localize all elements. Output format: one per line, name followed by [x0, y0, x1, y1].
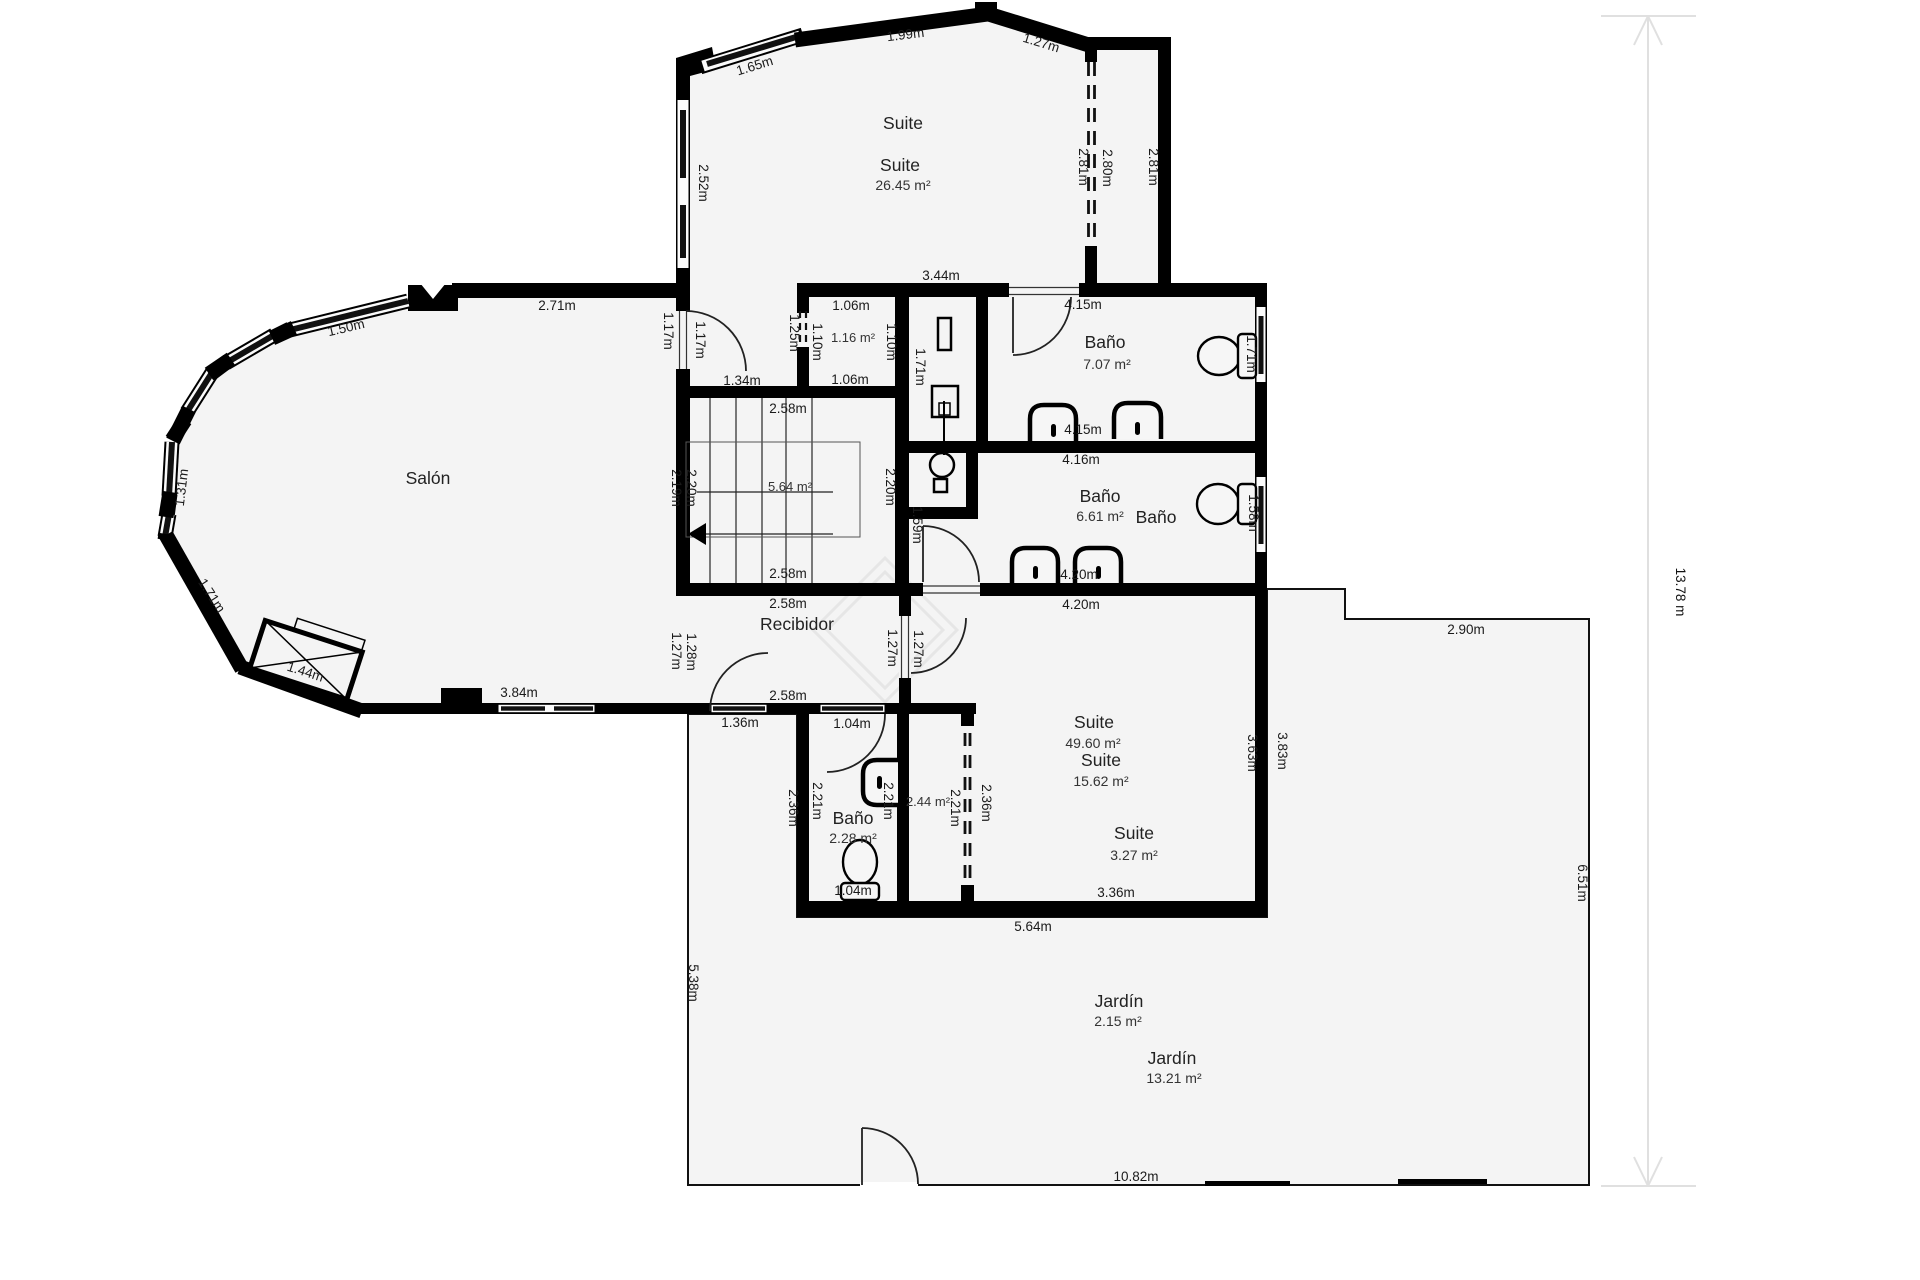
- svg-text:6.61 m²: 6.61 m²: [1076, 508, 1124, 524]
- svg-text:4.16m: 4.16m: [1062, 452, 1100, 467]
- svg-text:1.27m: 1.27m: [911, 630, 926, 668]
- svg-text:2.52m: 2.52m: [696, 164, 711, 202]
- svg-text:2.90m: 2.90m: [1447, 622, 1485, 637]
- svg-text:3.83m: 3.83m: [1275, 732, 1290, 770]
- svg-text:2.44 m²: 2.44 m²: [906, 794, 951, 809]
- svg-text:2.80m: 2.80m: [1100, 149, 1115, 187]
- svg-text:2.81m: 2.81m: [1146, 148, 1161, 186]
- svg-text:2.20m: 2.20m: [883, 468, 898, 506]
- svg-text:4.15m: 4.15m: [1064, 297, 1102, 312]
- svg-text:Suite: Suite: [883, 113, 923, 133]
- svg-text:1.04m: 1.04m: [834, 883, 872, 898]
- svg-text:13.78 m: 13.78 m: [1673, 568, 1688, 617]
- svg-text:2.21m: 2.21m: [881, 782, 896, 820]
- svg-text:Jardín: Jardín: [1095, 991, 1144, 1011]
- svg-text:5.38m: 5.38m: [686, 964, 701, 1002]
- svg-text:Baño: Baño: [1085, 332, 1126, 352]
- svg-text:Jardín: Jardín: [1148, 1048, 1197, 1068]
- svg-text:2.58m: 2.58m: [769, 596, 807, 611]
- svg-text:7.07 m²: 7.07 m²: [1083, 356, 1131, 372]
- svg-text:1.17m: 1.17m: [661, 312, 676, 350]
- svg-text:1.59m: 1.59m: [910, 506, 925, 544]
- svg-text:2.81m: 2.81m: [1076, 148, 1091, 186]
- svg-text:1.27m: 1.27m: [885, 629, 900, 667]
- svg-text:Baño: Baño: [833, 808, 874, 828]
- svg-text:2.58m: 2.58m: [769, 401, 807, 416]
- svg-text:1.16 m²: 1.16 m²: [831, 330, 876, 345]
- svg-text:2.36m: 2.36m: [979, 784, 994, 822]
- svg-text:Baño: Baño: [1080, 486, 1121, 506]
- svg-text:26.45 m²: 26.45 m²: [875, 177, 931, 193]
- svg-text:1.36m: 1.36m: [721, 715, 759, 730]
- svg-text:15.62 m²: 15.62 m²: [1073, 773, 1129, 789]
- svg-text:1.25m: 1.25m: [787, 314, 802, 352]
- svg-text:2.20m: 2.20m: [684, 469, 699, 507]
- svg-text:2.58m: 2.58m: [769, 566, 807, 581]
- svg-text:1.17m: 1.17m: [693, 321, 708, 359]
- svg-text:13.21 m²: 13.21 m²: [1146, 1070, 1202, 1086]
- svg-text:2.58m: 2.58m: [769, 688, 807, 703]
- svg-text:2.28 m²: 2.28 m²: [829, 830, 877, 846]
- svg-text:2.21m: 2.21m: [948, 789, 963, 827]
- svg-text:3.44m: 3.44m: [922, 268, 960, 283]
- svg-text:Suite: Suite: [1074, 712, 1114, 732]
- svg-text:10.82m: 10.82m: [1113, 1169, 1158, 1184]
- svg-text:1.58m: 1.58m: [1246, 494, 1261, 532]
- svg-text:1.27m: 1.27m: [669, 632, 684, 670]
- svg-text:3.27 m²: 3.27 m²: [1110, 847, 1158, 863]
- svg-text:Salón: Salón: [406, 468, 451, 488]
- svg-text:2.36m: 2.36m: [786, 789, 801, 827]
- svg-text:2.71m: 2.71m: [538, 298, 576, 313]
- svg-text:3.36m: 3.36m: [1097, 885, 1135, 900]
- svg-text:1.28m: 1.28m: [684, 633, 699, 671]
- svg-text:1.71m: 1.71m: [1244, 335, 1259, 373]
- svg-text:3.63m: 3.63m: [1245, 734, 1260, 772]
- svg-text:Suite: Suite: [1081, 750, 1121, 770]
- svg-text:4.15m: 4.15m: [1064, 422, 1102, 437]
- svg-text:2.19m: 2.19m: [669, 469, 684, 507]
- svg-text:49.60 m²: 49.60 m²: [1065, 735, 1121, 751]
- svg-text:3.84m: 3.84m: [500, 685, 538, 700]
- svg-text:1.10m: 1.10m: [810, 323, 825, 361]
- svg-text:1.10m: 1.10m: [884, 323, 899, 361]
- svg-text:4.20m: 4.20m: [1062, 597, 1100, 612]
- svg-text:Recibidor: Recibidor: [760, 614, 834, 634]
- svg-text:1.06m: 1.06m: [831, 372, 869, 387]
- svg-text:Suite: Suite: [880, 155, 920, 175]
- svg-text:1.71m: 1.71m: [913, 348, 928, 386]
- svg-text:Baño: Baño: [1136, 507, 1177, 527]
- svg-text:1.04m: 1.04m: [833, 716, 871, 731]
- svg-text:5.64m: 5.64m: [1014, 919, 1052, 934]
- svg-text:5.64 m²: 5.64 m²: [768, 479, 813, 494]
- svg-text:6.51m: 6.51m: [1575, 864, 1590, 902]
- svg-text:1.34m: 1.34m: [723, 373, 761, 388]
- svg-text:2.15 m²: 2.15 m²: [1094, 1013, 1142, 1029]
- svg-text:4.20m: 4.20m: [1060, 567, 1098, 582]
- svg-text:1.06m: 1.06m: [832, 298, 870, 313]
- svg-text:Suite: Suite: [1114, 823, 1154, 843]
- svg-text:2.21m: 2.21m: [810, 782, 825, 820]
